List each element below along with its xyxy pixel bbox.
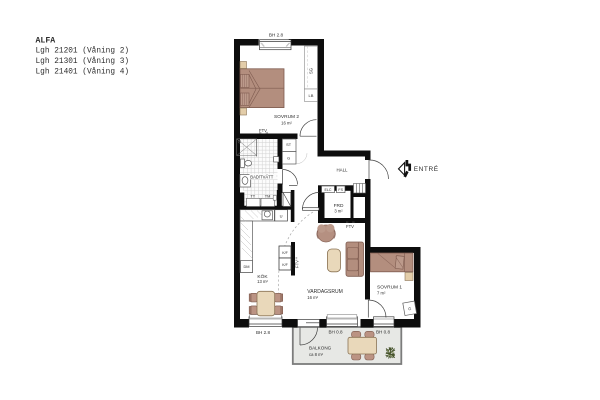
svg-text:BH 0.8: BH 0.8 [328,330,342,335]
svg-text:TT: TT [250,194,255,199]
svg-text:Lgh 21201 (Våning 2): Lgh 21201 (Våning 2) [36,47,130,56]
svg-text:Lgh 21401 (Våning 4): Lgh 21401 (Våning 4) [36,67,130,76]
svg-text:3 m²: 3 m² [334,208,343,213]
svg-text:ca 8 m²: ca 8 m² [309,352,324,357]
svg-text:16 m²: 16 m² [307,295,318,300]
svg-text:TM: TM [265,194,271,199]
svg-text:U: U [280,213,283,218]
svg-text:LB: LB [309,93,314,98]
svg-text:SOVRUM 1: SOVRUM 1 [377,285,402,291]
svg-text:ALFA: ALFA [36,37,56,46]
svg-text:Lgh 21301 (Våning 3): Lgh 21301 (Våning 3) [36,57,130,66]
svg-text:ENTRÉ: ENTRÉ [414,164,439,173]
svg-text:FTV: FTV [346,224,354,229]
svg-text:BH 2.8: BH 2.8 [256,330,270,335]
svg-text:SOVRUM 2: SOVRUM 2 [274,114,299,120]
svg-text:SG: SG [308,68,313,74]
svg-text:7 m²: 7 m² [377,291,386,296]
svg-text:HALL: HALL [337,168,349,173]
svg-text:BAD/TVÄTT: BAD/TVÄTT [250,174,273,179]
svg-text:G: G [287,155,290,160]
svg-text:13 m²: 13 m² [257,279,268,284]
svg-text:FS: FS [338,188,343,192]
svg-text:BH 2.8: BH 2.8 [269,33,284,38]
svg-text:BALKONG: BALKONG [309,346,332,351]
svg-text:BH 0.8: BH 0.8 [376,330,390,335]
svg-text:ST: ST [286,142,292,147]
svg-text:ELC: ELC [325,188,332,192]
svg-text:FTV: FTV [295,260,300,268]
svg-text:K/F: K/F [282,251,288,255]
svg-text:16 m²: 16 m² [281,121,292,126]
svg-text:DM: DM [243,264,249,269]
svg-text:K/F: K/F [282,263,288,267]
